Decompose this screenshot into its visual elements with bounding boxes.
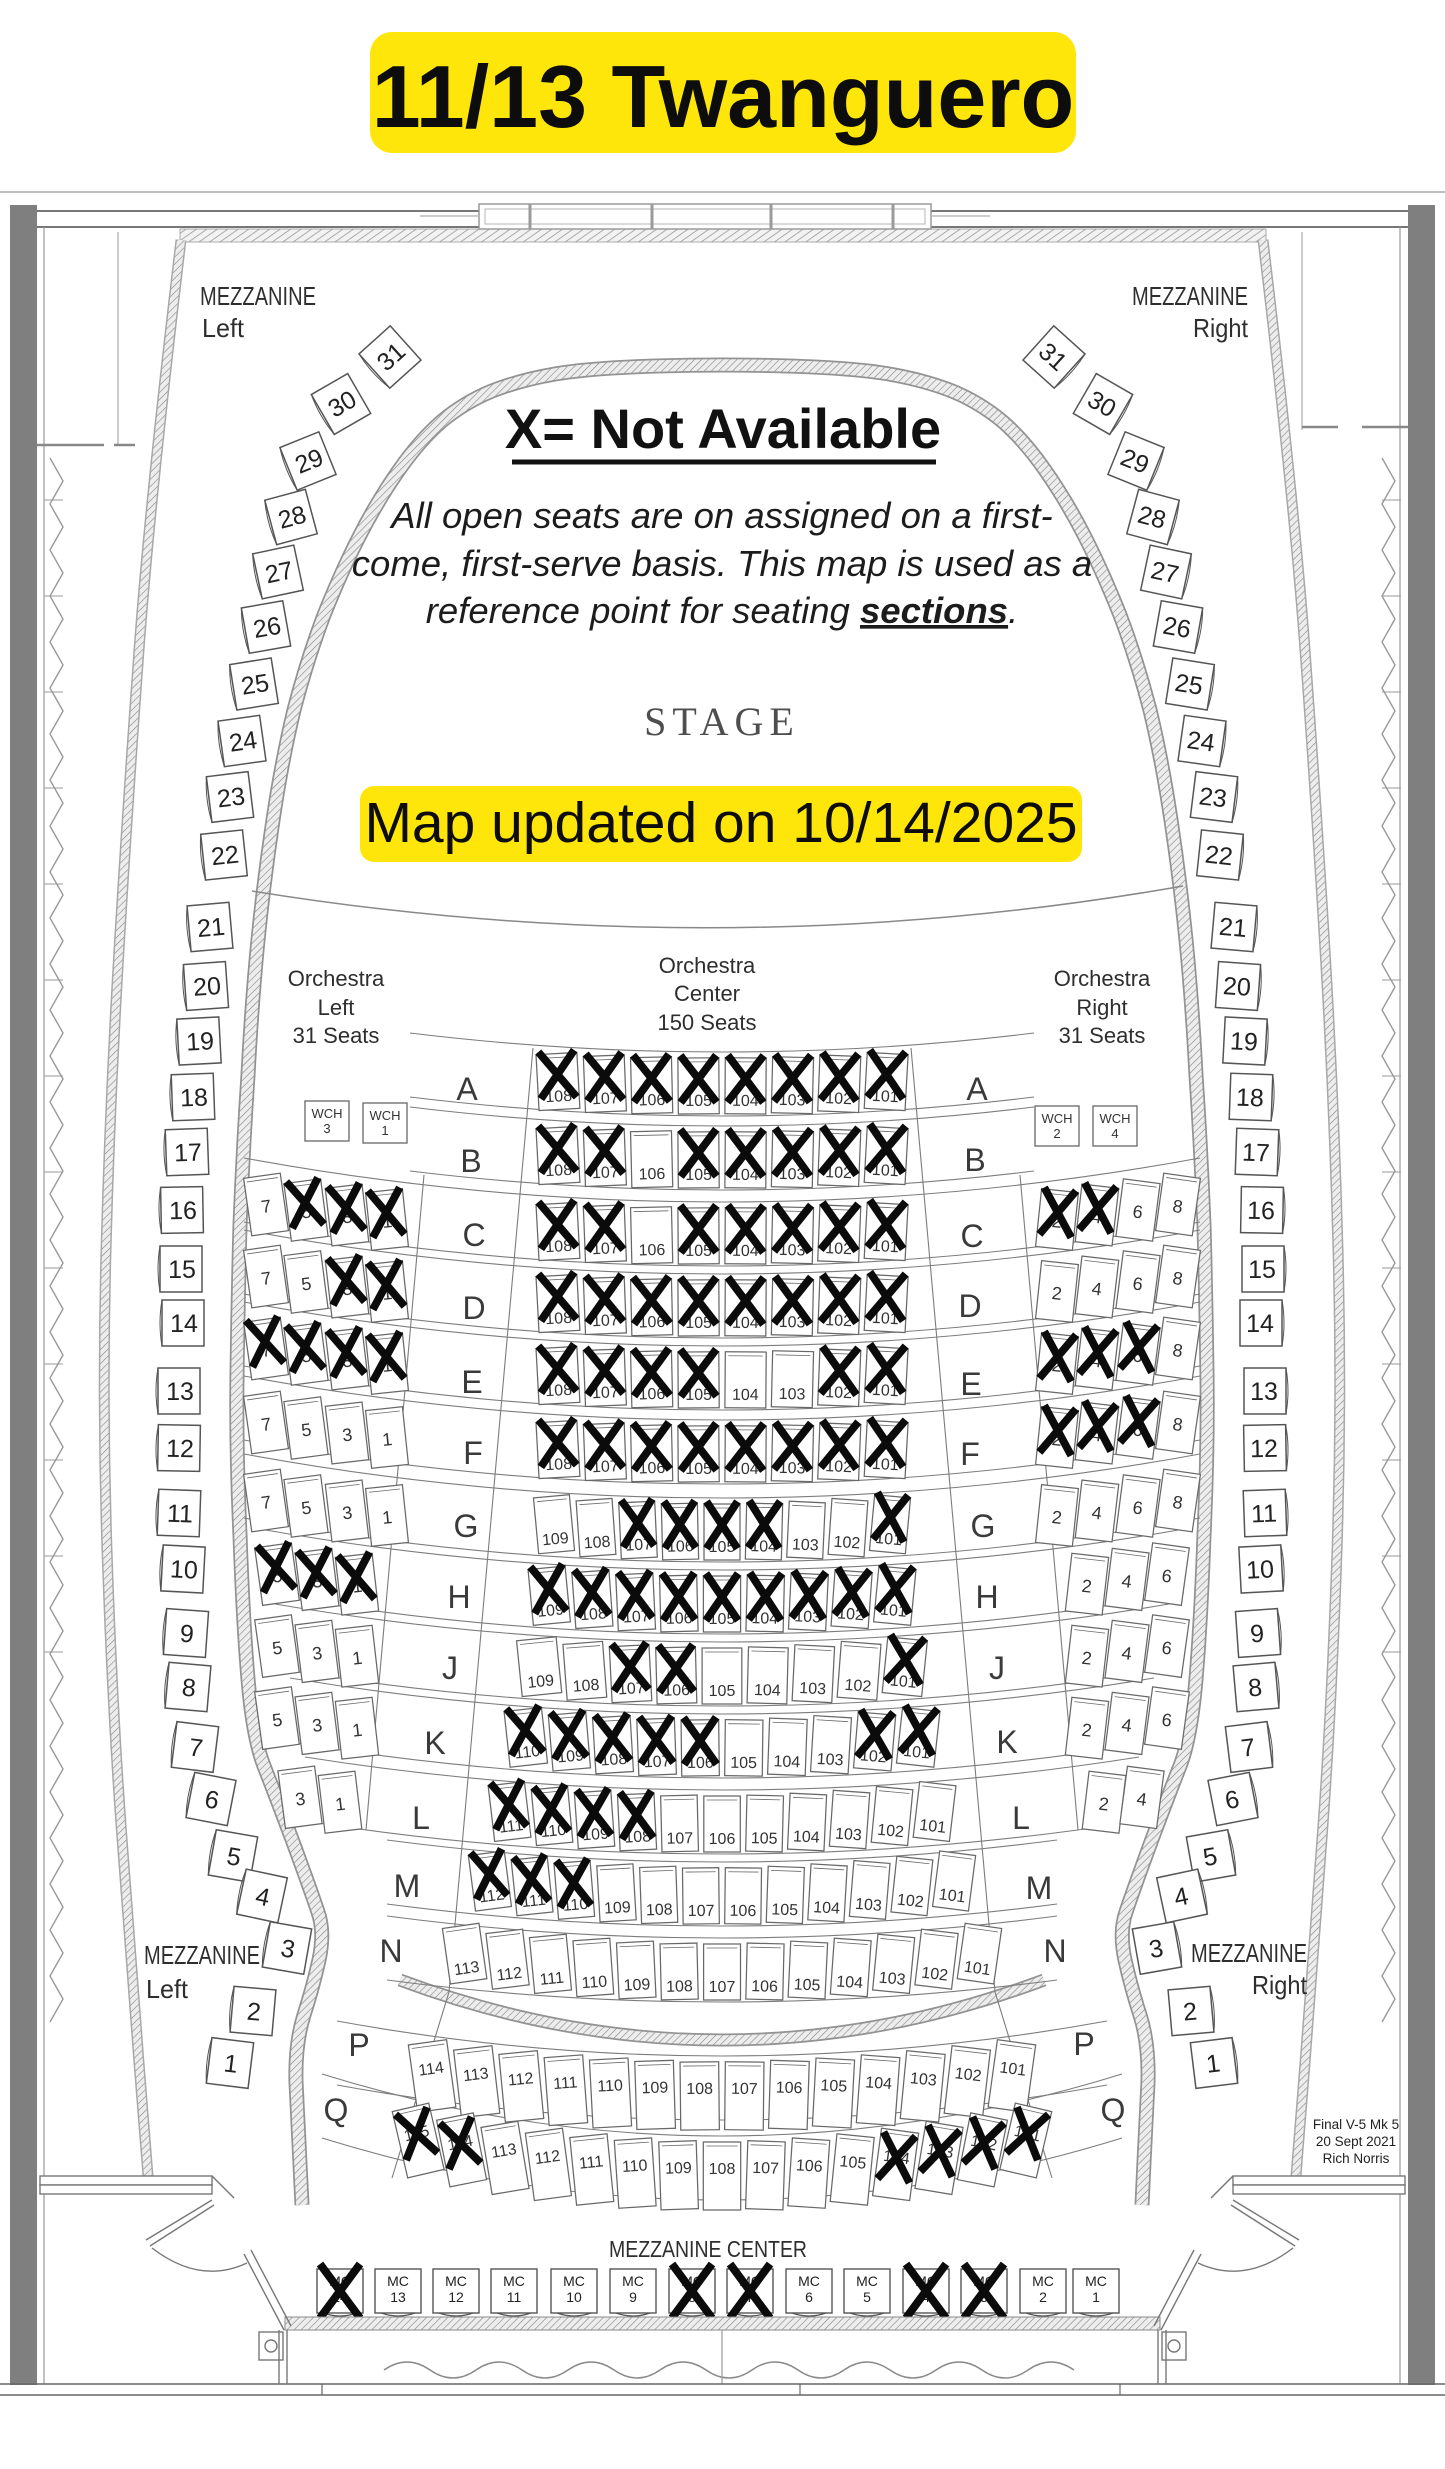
svg-text:11/13 Twanguero: 11/13 Twanguero: [372, 47, 1075, 146]
svg-text:109: 109: [623, 1976, 651, 1994]
svg-text:18: 18: [1236, 1083, 1265, 1112]
svg-text:112: 112: [496, 1965, 523, 1985]
svg-text:13: 13: [166, 1378, 194, 1406]
svg-text:WCH: WCH: [369, 1108, 400, 1123]
svg-text:107: 107: [666, 1830, 693, 1848]
svg-text:Left: Left: [318, 995, 355, 1020]
svg-text:102: 102: [833, 1534, 861, 1553]
svg-text:2: 2: [1051, 1507, 1063, 1528]
svg-text:Orchestra: Orchestra: [659, 953, 756, 978]
svg-text:102: 102: [954, 2065, 983, 2085]
svg-text:MC: MC: [1032, 2273, 1054, 2289]
svg-text:12: 12: [166, 1435, 194, 1463]
svg-text:104: 104: [836, 1973, 864, 1992]
svg-text:23: 23: [216, 782, 247, 813]
svg-text:L: L: [412, 1800, 430, 1836]
svg-text:108: 108: [666, 1978, 693, 1996]
svg-text:19: 19: [185, 1027, 214, 1056]
svg-text:110: 110: [597, 2077, 623, 2095]
svg-text:21: 21: [196, 913, 226, 943]
svg-text:20 Sept 2021: 20 Sept 2021: [1316, 2134, 1396, 2149]
svg-text:MC: MC: [1085, 2273, 1107, 2289]
svg-text:WCH: WCH: [1041, 1111, 1072, 1126]
svg-text:MC: MC: [798, 2273, 820, 2289]
svg-text:6: 6: [805, 2289, 813, 2305]
svg-text:106: 106: [638, 1242, 665, 1260]
svg-text:101: 101: [938, 1886, 967, 1906]
svg-text:H: H: [975, 1579, 998, 1615]
svg-text:108: 108: [646, 1901, 673, 1919]
svg-text:Right: Right: [1076, 995, 1127, 1020]
svg-text:112: 112: [534, 2148, 562, 2168]
svg-text:Map updated on 10/14/2025: Map updated on 10/14/2025: [364, 791, 1077, 855]
svg-text:111: 111: [578, 2153, 604, 2172]
svg-text:111: 111: [539, 1970, 565, 1989]
svg-text:20: 20: [1222, 972, 1252, 1002]
svg-text:15: 15: [168, 1256, 196, 1284]
svg-text:101: 101: [918, 1817, 947, 1837]
svg-text:150 Seats: 150 Seats: [657, 1010, 756, 1035]
svg-text:Orchestra: Orchestra: [288, 966, 385, 991]
svg-text:26: 26: [1161, 612, 1193, 644]
svg-text:2: 2: [1053, 1126, 1060, 1141]
svg-text:109: 109: [527, 1672, 555, 1692]
svg-text:10: 10: [169, 1555, 198, 1584]
svg-text:113: 113: [453, 1959, 481, 1979]
svg-text:102: 102: [876, 1822, 904, 1841]
svg-text:114: 114: [417, 2059, 445, 2079]
svg-text:112: 112: [507, 2070, 534, 2089]
svg-text:D: D: [958, 1288, 981, 1324]
svg-text:101: 101: [998, 2059, 1027, 2080]
svg-text:108: 108: [686, 2081, 713, 2098]
svg-text:106: 106: [775, 2079, 802, 2097]
svg-text:111: 111: [553, 2074, 579, 2093]
svg-text:104: 104: [754, 1682, 781, 1700]
svg-text:22: 22: [1204, 841, 1235, 872]
svg-text:24: 24: [227, 726, 259, 758]
svg-text:14: 14: [1246, 1310, 1274, 1338]
svg-text:A: A: [966, 1071, 988, 1107]
svg-text:103: 103: [778, 1386, 805, 1404]
svg-text:All open seats are on assigned: All open seats are on assigned on a firs…: [389, 495, 1052, 536]
svg-text:E: E: [960, 1366, 981, 1402]
svg-text:103: 103: [834, 1826, 862, 1845]
svg-text:105: 105: [771, 1901, 798, 1919]
svg-text:D: D: [462, 1290, 485, 1326]
svg-text:Q: Q: [1101, 2092, 1126, 2128]
svg-text:MEZZANINE CENTER: MEZZANINE CENTER: [609, 2236, 807, 2262]
svg-text:K: K: [996, 1724, 1017, 1760]
svg-text:K: K: [424, 1725, 445, 1761]
svg-text:106: 106: [709, 1831, 736, 1848]
svg-text:H: H: [447, 1579, 470, 1615]
svg-text:106: 106: [751, 1978, 778, 1996]
svg-text:1: 1: [381, 1429, 393, 1450]
svg-text:MC: MC: [856, 2273, 878, 2289]
svg-text:12: 12: [1250, 1435, 1278, 1463]
svg-text:8: 8: [181, 1674, 197, 1703]
svg-text:F: F: [463, 1435, 483, 1471]
svg-text:102: 102: [920, 1965, 949, 1985]
svg-text:G: G: [971, 1508, 996, 1544]
svg-text:25: 25: [1173, 669, 1205, 701]
svg-text:15: 15: [1248, 1256, 1276, 1284]
svg-text:18: 18: [180, 1083, 209, 1112]
svg-text:31 Seats: 31 Seats: [1059, 1023, 1146, 1048]
svg-text:107: 107: [731, 2081, 758, 2098]
svg-text:23: 23: [1197, 782, 1228, 813]
svg-text:103: 103: [909, 2070, 937, 2089]
svg-text:103: 103: [878, 1970, 906, 1989]
svg-text:105: 105: [730, 1755, 757, 1772]
svg-text:2: 2: [1039, 2289, 1047, 2305]
svg-text:M: M: [394, 1868, 421, 1904]
svg-text:107: 107: [709, 1979, 736, 1996]
svg-text:17: 17: [174, 1138, 203, 1167]
svg-text:26: 26: [251, 612, 283, 644]
svg-text:MEZZANINE: MEZZANINE: [200, 281, 316, 311]
svg-text:11: 11: [507, 2289, 522, 2305]
svg-text:107: 107: [752, 2160, 779, 2178]
svg-text:105: 105: [839, 2153, 867, 2173]
svg-text:31 Seats: 31 Seats: [293, 1023, 380, 1048]
svg-text:103: 103: [816, 1751, 844, 1770]
svg-text:109: 109: [541, 1530, 569, 1549]
svg-text:WCH: WCH: [311, 1106, 342, 1121]
svg-text:106: 106: [729, 1903, 756, 1920]
svg-text:104: 104: [793, 1828, 821, 1846]
svg-text:N: N: [379, 1933, 402, 1969]
svg-text:MC: MC: [387, 2273, 409, 2289]
svg-text:109: 109: [641, 2079, 668, 2097]
svg-text:103: 103: [854, 1896, 882, 1915]
svg-text:9: 9: [629, 2289, 637, 2305]
svg-text:16: 16: [1247, 1197, 1275, 1225]
svg-text:105: 105: [709, 1683, 736, 1700]
svg-text:2: 2: [1051, 1283, 1063, 1304]
svg-text:Center: Center: [674, 981, 740, 1006]
svg-text:Orchestra: Orchestra: [1054, 966, 1151, 991]
svg-text:104: 104: [865, 2074, 893, 2093]
svg-text:108: 108: [572, 1677, 600, 1696]
svg-text:9: 9: [1249, 1620, 1265, 1649]
svg-text:C: C: [960, 1218, 983, 1254]
svg-text:11: 11: [1251, 1500, 1278, 1529]
svg-text:G: G: [454, 1508, 479, 1544]
svg-text:MC: MC: [563, 2273, 585, 2289]
svg-text:J: J: [989, 1650, 1005, 1686]
svg-text:8: 8: [1247, 1674, 1263, 1703]
svg-text:Right: Right: [1193, 313, 1249, 343]
svg-text:103: 103: [799, 1680, 827, 1698]
svg-text:Final V-5 Mk 5: Final V-5 Mk 5: [1313, 2117, 1399, 2132]
svg-text:Left: Left: [146, 1974, 189, 2004]
svg-text:1: 1: [381, 1507, 393, 1528]
svg-text:Rich Norris: Rich Norris: [1323, 2151, 1390, 2166]
svg-text:5: 5: [863, 2289, 871, 2305]
svg-text:105: 105: [751, 1830, 778, 1848]
svg-text:come, first-serve basis. This: come, first-serve basis. This map is use…: [352, 543, 1092, 584]
svg-text:P: P: [348, 2027, 369, 2063]
svg-text:105: 105: [820, 2077, 848, 2095]
svg-text:105: 105: [793, 1976, 821, 1994]
svg-text:108: 108: [583, 1534, 611, 1553]
svg-text:24: 24: [1185, 726, 1217, 758]
svg-text:12: 12: [448, 2289, 464, 2305]
svg-text:22: 22: [210, 841, 241, 872]
svg-text:20: 20: [192, 972, 222, 1002]
svg-text:MC: MC: [622, 2273, 644, 2289]
svg-text:4: 4: [1111, 1126, 1118, 1141]
svg-text:J: J: [442, 1650, 458, 1686]
svg-text:110: 110: [621, 2157, 648, 2176]
svg-text:110: 110: [581, 1973, 608, 1992]
svg-text:MC: MC: [445, 2273, 467, 2289]
svg-text:27: 27: [263, 556, 296, 589]
svg-text:P: P: [1073, 2026, 1094, 2062]
svg-text:MEZZANINE: MEZZANINE: [144, 1940, 260, 1970]
svg-text:N: N: [1043, 1933, 1066, 1969]
svg-text:STAGE: STAGE: [644, 699, 800, 744]
svg-text:9: 9: [179, 1620, 195, 1649]
svg-text:21: 21: [1218, 913, 1248, 943]
svg-text:19: 19: [1229, 1027, 1258, 1056]
svg-text:1: 1: [1092, 2289, 1100, 2305]
svg-text:102: 102: [844, 1677, 872, 1696]
svg-text:16: 16: [169, 1197, 197, 1225]
svg-text:109: 109: [665, 2160, 692, 2178]
svg-text:113: 113: [462, 2065, 489, 2085]
svg-text:13: 13: [1250, 1378, 1278, 1406]
svg-text:102: 102: [896, 1892, 924, 1912]
svg-text:107: 107: [688, 1903, 715, 1920]
svg-text:2: 2: [1182, 1998, 1198, 2027]
svg-text:14: 14: [170, 1310, 198, 1338]
svg-text:F: F: [960, 1436, 980, 1472]
svg-text:17: 17: [1242, 1138, 1271, 1167]
svg-text:106: 106: [795, 2157, 823, 2176]
svg-text:B: B: [964, 1142, 985, 1178]
svg-text:Q: Q: [324, 2092, 349, 2128]
svg-text:L: L: [1012, 1800, 1030, 1836]
svg-text:reference point for seating se: reference point for seating sections.: [426, 590, 1018, 631]
svg-text:Left: Left: [202, 313, 245, 343]
svg-text:13: 13: [390, 2289, 406, 2305]
svg-text:103: 103: [792, 1536, 820, 1554]
svg-text:109: 109: [604, 1899, 632, 1918]
svg-text:11: 11: [167, 1500, 194, 1529]
svg-text:10: 10: [566, 2289, 582, 2305]
svg-text:M: M: [1026, 1870, 1053, 1906]
svg-text:MEZZANINE: MEZZANINE: [1191, 1938, 1307, 1968]
svg-text:A: A: [456, 1071, 478, 1107]
svg-text:104: 104: [813, 1899, 841, 1918]
svg-text:10: 10: [1245, 1555, 1274, 1584]
svg-text:X= Not Available: X= Not Available: [505, 397, 941, 460]
svg-text:MC: MC: [503, 2273, 525, 2289]
svg-text:WCH: WCH: [1099, 1111, 1130, 1126]
svg-text:1: 1: [381, 1123, 388, 1138]
svg-text:27: 27: [1148, 556, 1181, 589]
svg-text:2: 2: [246, 1998, 262, 2027]
svg-text:104: 104: [732, 1387, 759, 1404]
svg-text:25: 25: [239, 669, 271, 701]
svg-text:MEZZANINE: MEZZANINE: [1132, 281, 1248, 311]
svg-text:C: C: [462, 1217, 485, 1253]
svg-text:3: 3: [323, 1121, 330, 1136]
svg-text:E: E: [461, 1364, 482, 1400]
svg-text:108: 108: [709, 2161, 736, 2178]
svg-text:Right: Right: [1252, 1970, 1308, 2000]
svg-text:104: 104: [773, 1753, 800, 1771]
svg-text:B: B: [460, 1143, 481, 1179]
svg-text:106: 106: [638, 1166, 665, 1184]
